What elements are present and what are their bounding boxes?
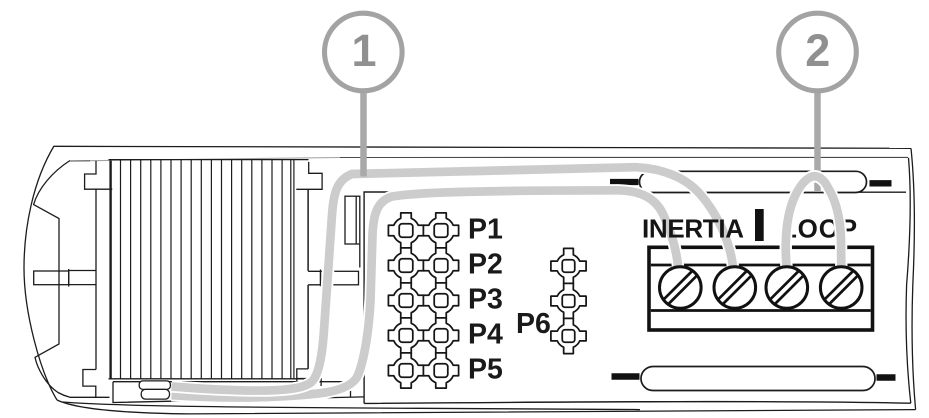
svg-text:2: 2 [805, 25, 830, 76]
svg-text:INERTIA: INERTIA [642, 213, 744, 243]
svg-text:1: 1 [351, 25, 376, 76]
svg-text:P2: P2 [468, 249, 503, 281]
svg-text:P6: P6 [516, 308, 551, 340]
svg-text:P3: P3 [468, 284, 503, 316]
svg-text:P1: P1 [468, 214, 503, 246]
svg-text:P5: P5 [468, 354, 503, 386]
svg-text:P4: P4 [468, 319, 503, 351]
